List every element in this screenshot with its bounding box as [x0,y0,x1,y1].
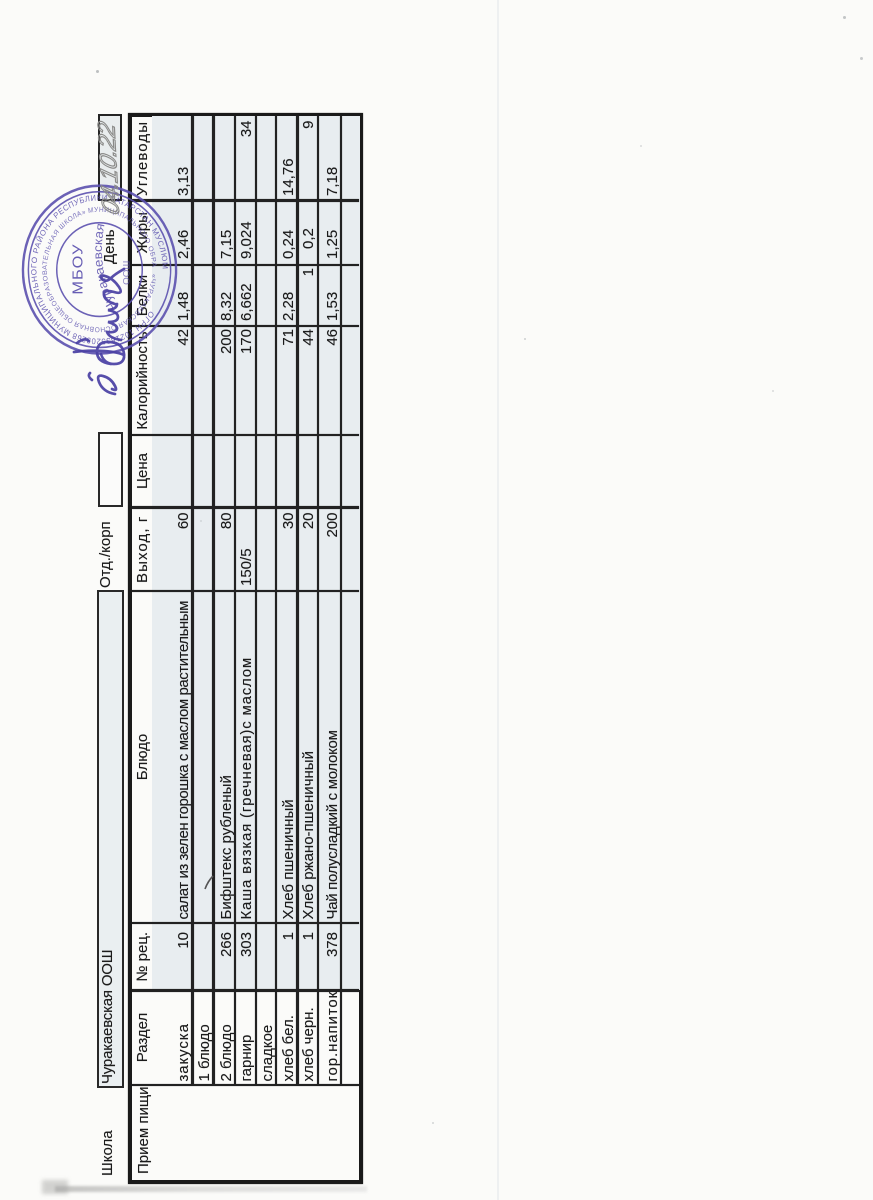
svg-text:04.10.22: 04.10.22 [94,119,125,218]
